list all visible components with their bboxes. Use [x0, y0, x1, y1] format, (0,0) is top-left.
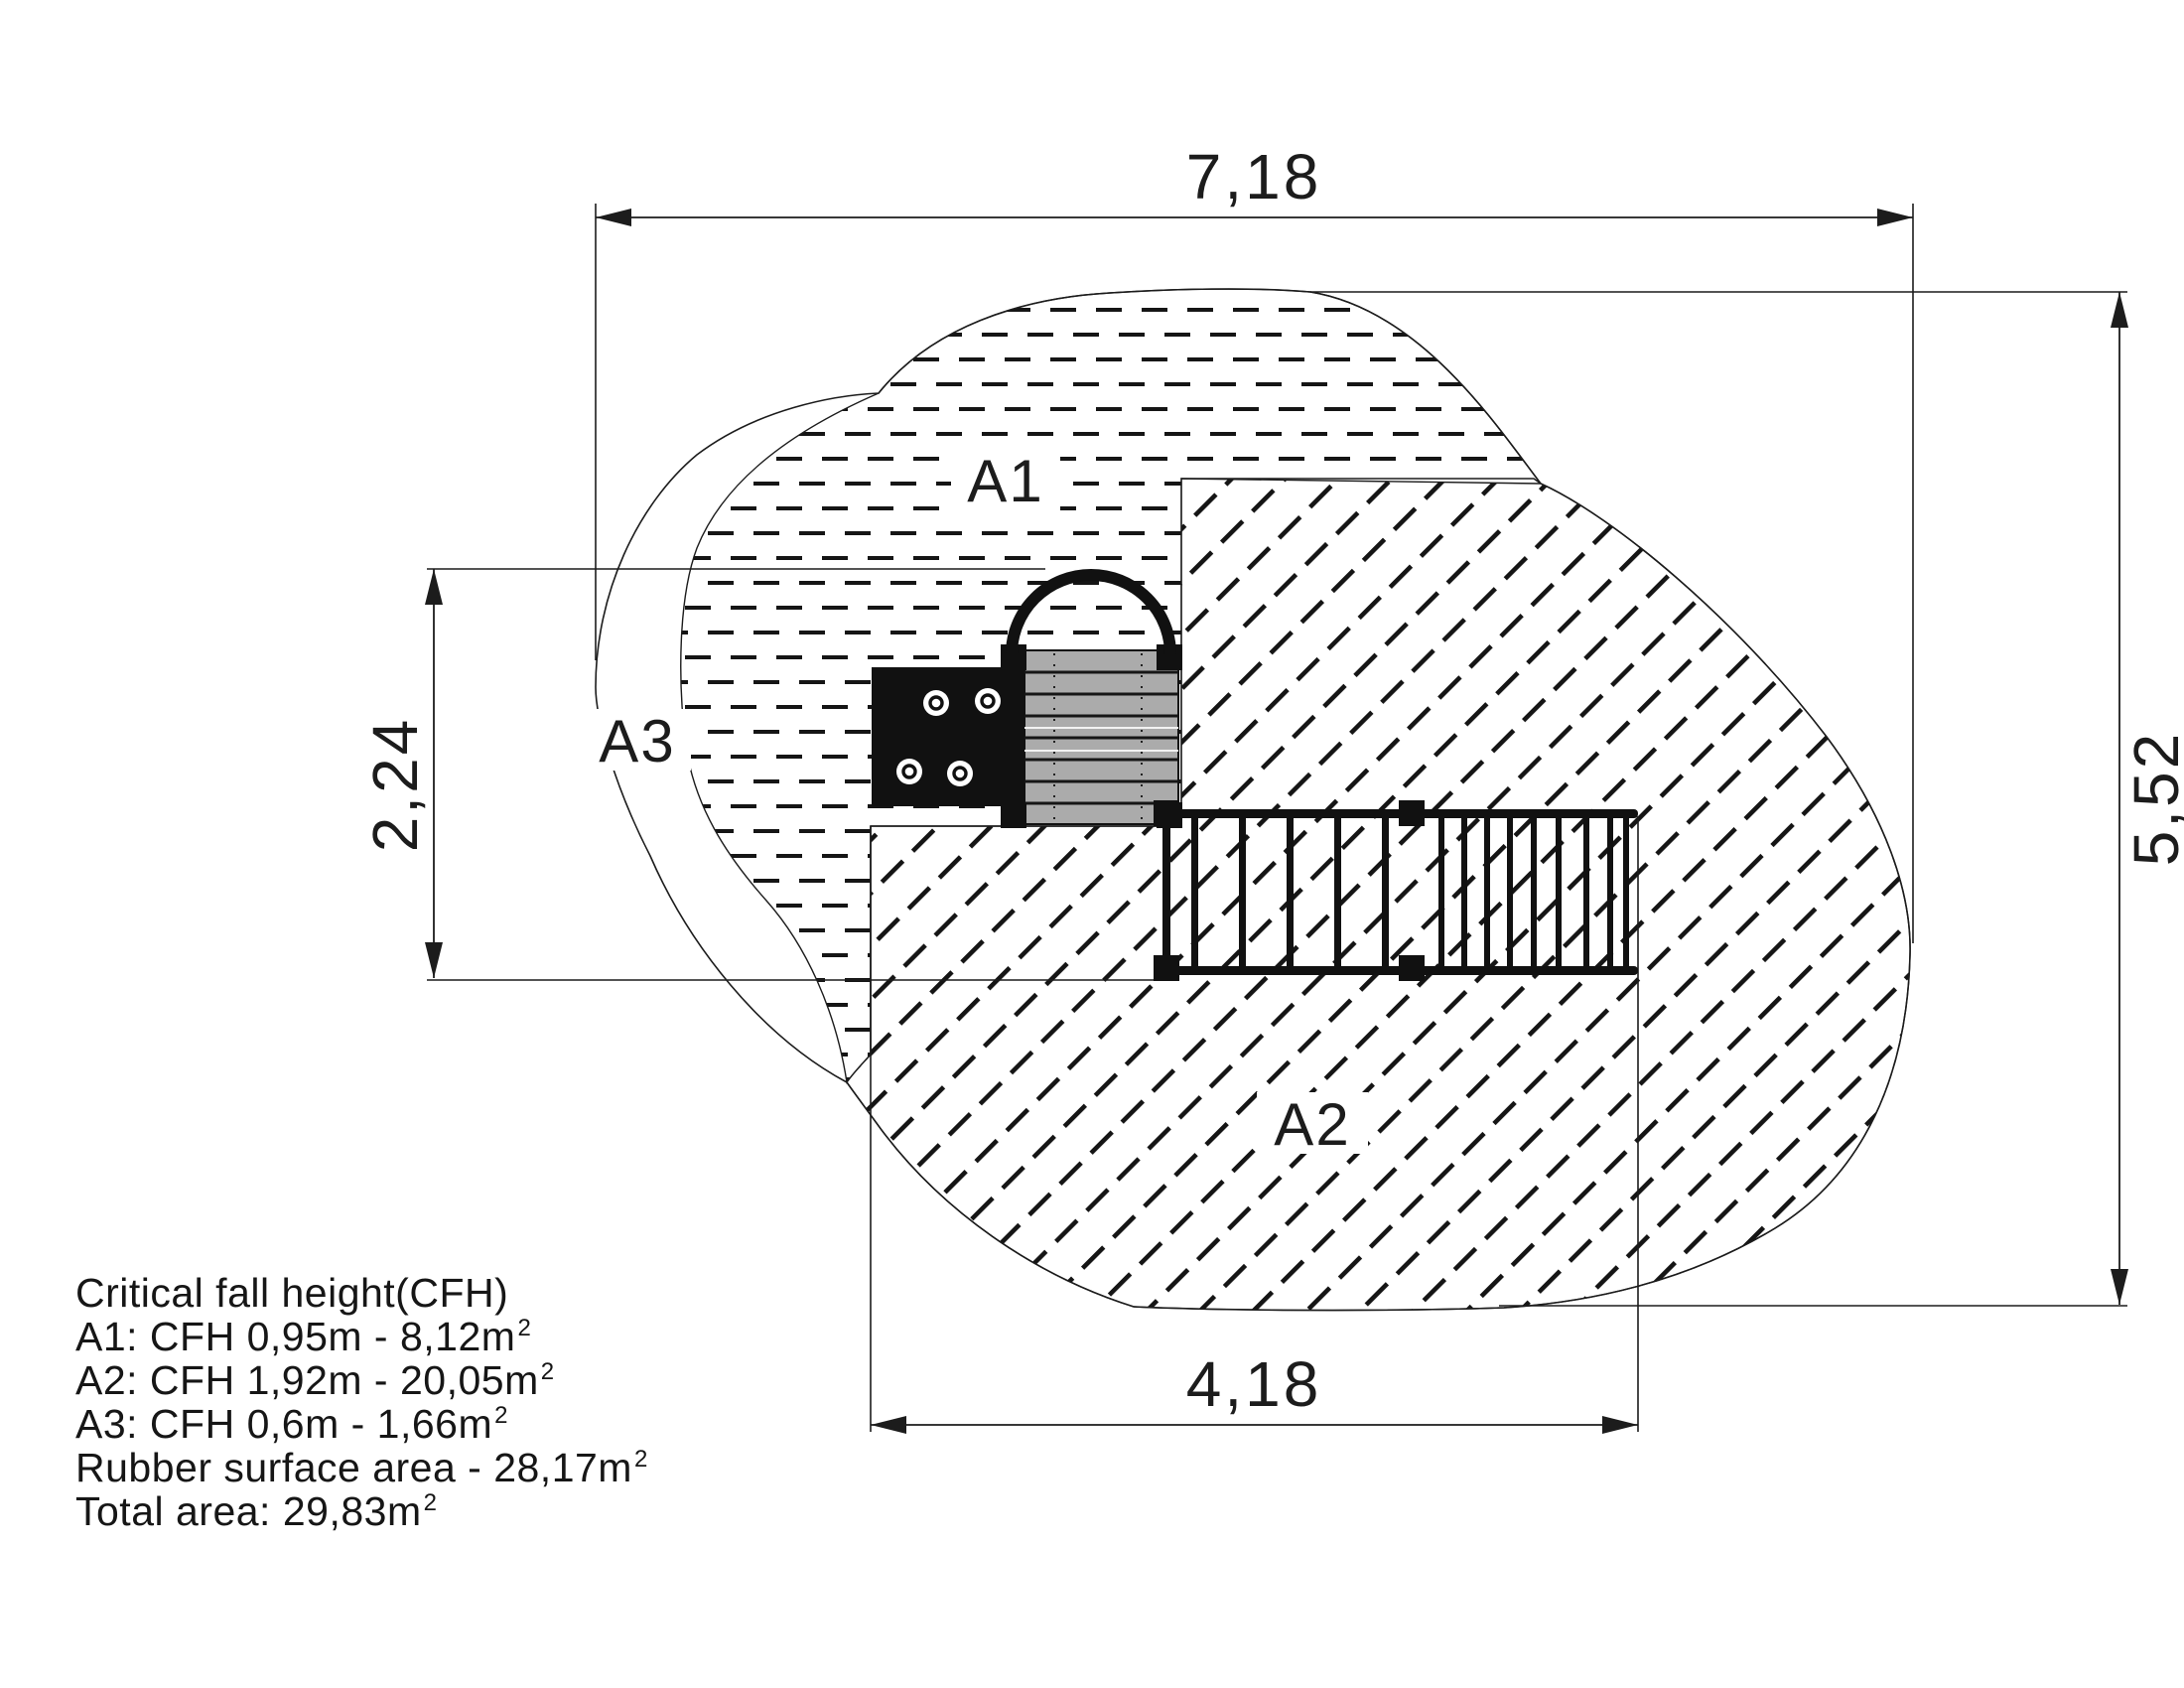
a3-label: A3 [584, 708, 691, 774]
cfh-notes-block: Critical fall height(CFH) A1: CFH 0,95m … [75, 1271, 648, 1533]
arrow-up-icon [2111, 292, 2128, 328]
note-rubber-area: Rubber surface area - 28,17m2 [75, 1446, 648, 1489]
note-a1: A1: CFH 0,95m - 8,12m2 [75, 1315, 648, 1358]
arrow-left-icon [596, 209, 631, 226]
dimension-label: 4,18 [1186, 1348, 1322, 1420]
notes-title: Critical fall height(CFH) [75, 1271, 648, 1315]
superscript: 2 [634, 1446, 648, 1473]
dimension-total-height: 5,52 [2111, 292, 2184, 1305]
svg-text:A2: A2 [1274, 1091, 1350, 1158]
superscript: 2 [517, 1315, 531, 1341]
technical-drawing-page: A1 A3 A2 7,18 5,52 2,24 4,18 Crit [0, 0, 2184, 1688]
dimension-label: 5,52 [2120, 731, 2184, 867]
arrow-right-icon [1602, 1416, 1638, 1434]
dimension-label: 2,24 [359, 717, 431, 853]
dimension-total-width: 7,18 [596, 141, 1913, 226]
arrow-up-icon [425, 569, 443, 605]
dimension-label: 7,18 [1186, 141, 1322, 212]
bolt-icon [923, 690, 949, 716]
platform-black [872, 667, 1024, 806]
safety-zone-cloud [596, 289, 1910, 1311]
arrow-down-icon [2111, 1269, 2128, 1305]
note-a3: A3: CFH 0,6m - 1,66m2 [75, 1402, 648, 1446]
slatted-deck [1024, 650, 1178, 824]
bolt-icon [896, 759, 922, 784]
arrow-left-icon [871, 1416, 906, 1434]
svg-text:A3: A3 [599, 708, 675, 774]
note-total-area: Total area: 29,83m2 [75, 1489, 648, 1533]
superscript: 2 [494, 1402, 508, 1429]
a1-label: A1 [951, 448, 1060, 514]
bolt-icon [947, 761, 973, 786]
a2-label: A2 [1257, 1091, 1368, 1158]
note-a2: A2: CFH 1,92m - 20,05m2 [75, 1358, 648, 1402]
arrow-down-icon [425, 942, 443, 978]
dimension-equipment-depth: 2,24 [359, 569, 443, 978]
bolt-icon [975, 688, 1001, 714]
dimension-rubber-width: 4,18 [871, 1348, 1638, 1434]
superscript: 2 [424, 1489, 438, 1516]
arrow-right-icon [1877, 209, 1913, 226]
superscript: 2 [541, 1358, 555, 1385]
ladder-left-post [1162, 812, 1170, 973]
svg-text:A1: A1 [967, 448, 1043, 514]
